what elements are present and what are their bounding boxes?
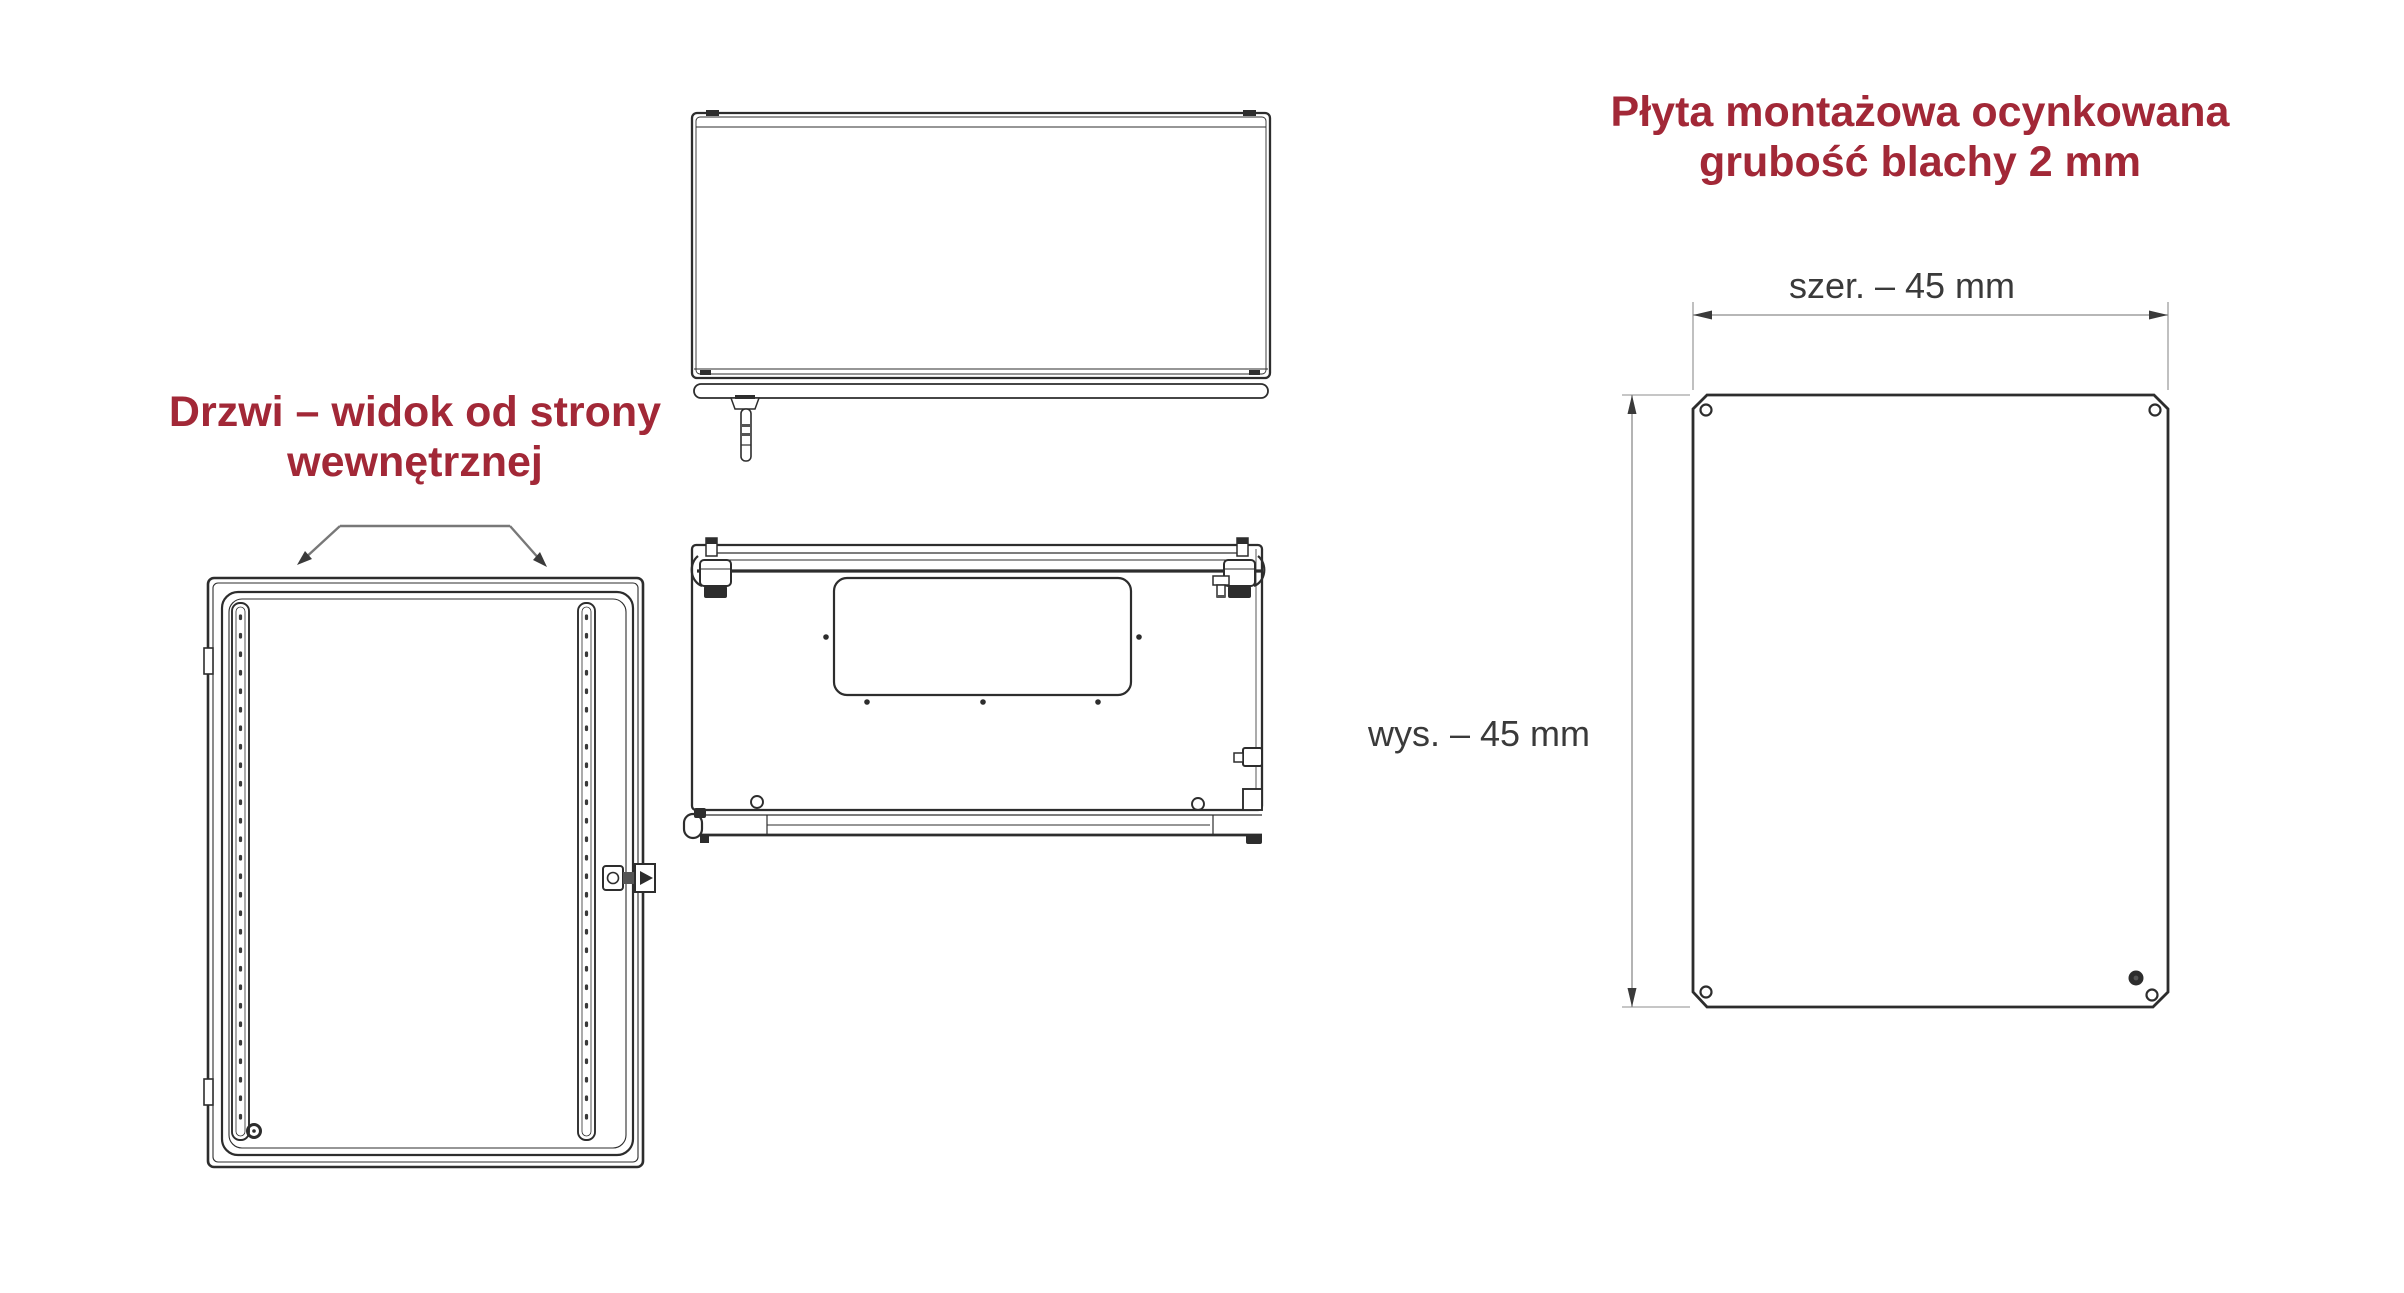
top-tab-right — [1243, 110, 1256, 116]
width-dimension-label: szer. – 45 mm — [1712, 266, 2092, 306]
top-tab-left — [706, 110, 719, 116]
bottom-rail — [684, 808, 1262, 844]
door-back-view-drawing — [684, 538, 1264, 844]
door-view-label: Drzwi – widok od strony wewnętrznej — [150, 388, 680, 488]
door-rail-left — [232, 603, 249, 1140]
door-bottom-profile — [694, 384, 1268, 398]
hinge-pin — [731, 395, 759, 461]
mounting-plate-title-line1: Płyta montażowa ocynkowana — [1600, 88, 2240, 138]
door-view-label-line1: Drzwi – widok od strony — [150, 388, 680, 438]
door-view-label-line2: wewnętrznej — [150, 438, 680, 488]
door-rail-right — [578, 603, 595, 1140]
mounting-plate-title: Płyta montażowa ocynkowana grubość blach… — [1600, 88, 2240, 188]
mounting-plate-title-line2: grubość blachy 2 mm — [1600, 138, 2240, 188]
width-dimension — [1693, 302, 2168, 390]
door-inner-view-drawing — [204, 578, 655, 1167]
door-top-view-drawing — [692, 110, 1270, 461]
drawing-layer — [0, 0, 2404, 1293]
mounting-plate-drawing — [1693, 395, 2168, 1007]
height-dimension-label: wys. – 45 mm — [1340, 714, 1590, 754]
height-dimension — [1622, 395, 1690, 1007]
technical-drawing-canvas: Drzwi – widok od strony wewnętrznej Płyt… — [0, 0, 2404, 1293]
gland-plate-cutout — [834, 578, 1131, 695]
hinge-slot-top — [204, 648, 213, 674]
hinge-slot-bottom — [204, 1079, 213, 1105]
plate-ground-screw — [2129, 971, 2144, 986]
corner-block — [1243, 789, 1262, 810]
door-label-leader-arrows — [297, 526, 547, 567]
